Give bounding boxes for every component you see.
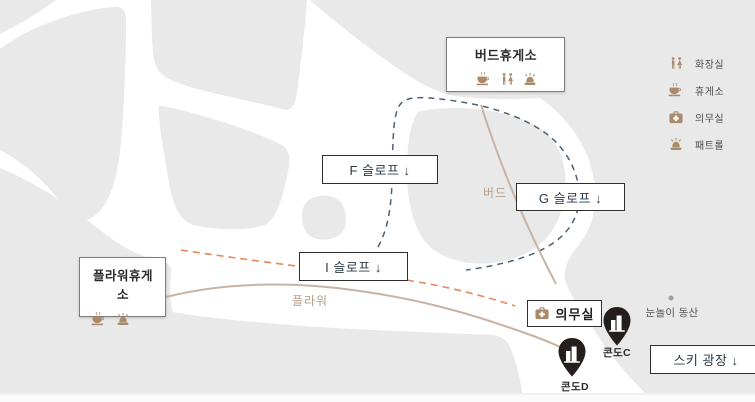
patrol-icon <box>116 313 130 326</box>
condo-c-label: 콘도C <box>593 345 641 360</box>
terrain-layer <box>0 0 755 402</box>
snow-hill-label: 눈놀이 동산 <box>640 305 704 320</box>
flower-rest-area-box[interactable]: 플라워휴게소 <box>79 257 166 317</box>
terrain-small-blob <box>302 196 346 240</box>
legend-row-toilet: 화장실 <box>668 56 724 70</box>
slope-i-box[interactable]: I 슬로프 ↓ <box>299 252 408 281</box>
legend-label-patrol: 패트롤 <box>695 137 724 152</box>
map-legend: 화장실 휴게소 의무실 패트롤 <box>668 56 724 151</box>
patrol-icon <box>668 138 684 151</box>
medical-room-box[interactable]: 의무실 <box>527 300 602 327</box>
legend-label-toilet: 화장실 <box>695 56 724 71</box>
slope-g-label: G 슬로프 ↓ <box>539 188 602 207</box>
medical-room-label: 의무실 <box>556 304 595 323</box>
snow-hill-dot <box>669 296 674 301</box>
medical-icon <box>668 111 684 124</box>
slope-g-box[interactable]: G 슬로프 ↓ <box>516 183 625 211</box>
slope-f-label: F 슬로프 ↓ <box>349 160 410 179</box>
patrol-icon <box>523 73 537 86</box>
toilet-icon <box>668 57 684 70</box>
legend-row-medical: 의무실 <box>668 110 724 124</box>
legend-row-rest: 휴게소 <box>668 83 724 97</box>
bird-lift-label: 버드 <box>473 184 517 201</box>
rest-icon <box>668 83 684 97</box>
bottom-strip-line <box>0 394 755 395</box>
rest-icon <box>91 312 107 326</box>
terrain-shapes <box>0 0 755 393</box>
ski-plaza-label: 스키 광장 ↓ <box>673 350 738 369</box>
condo-d-pin[interactable] <box>558 338 586 383</box>
flower-rest-area-label: 플라워휴게소 <box>89 265 157 303</box>
bottom-strip <box>0 394 755 402</box>
legend-row-patrol: 패트롤 <box>668 137 724 151</box>
flower-lift-label: 플라워 <box>288 292 332 309</box>
terrain-upper-middle-blob <box>151 0 307 110</box>
terrain-center-blob <box>158 106 289 229</box>
slope-f-box[interactable]: F 슬로프 ↓ <box>322 155 438 184</box>
ski-resort-map: 버드휴게소 F 슬로프 ↓ G 슬로프 ↓ I 슬로프 ↓ 스키 광장 ↓ 버드… <box>0 0 755 402</box>
medical-icon <box>535 307 549 320</box>
condo-d-label: 콘도D <box>551 379 599 394</box>
bird-rest-area-box[interactable]: 버드휴게소 <box>446 37 565 92</box>
legend-label-rest: 휴게소 <box>695 83 724 98</box>
bird-rest-area-label: 버드휴게소 <box>456 45 556 64</box>
ski-plaza-box[interactable]: 스키 광장 ↓ <box>650 345 755 374</box>
legend-label-medical: 의무실 <box>695 110 724 125</box>
slope-i-label: I 슬로프 ↓ <box>325 257 382 276</box>
toilet-icon <box>501 73 514 86</box>
rest-icon <box>476 72 492 86</box>
